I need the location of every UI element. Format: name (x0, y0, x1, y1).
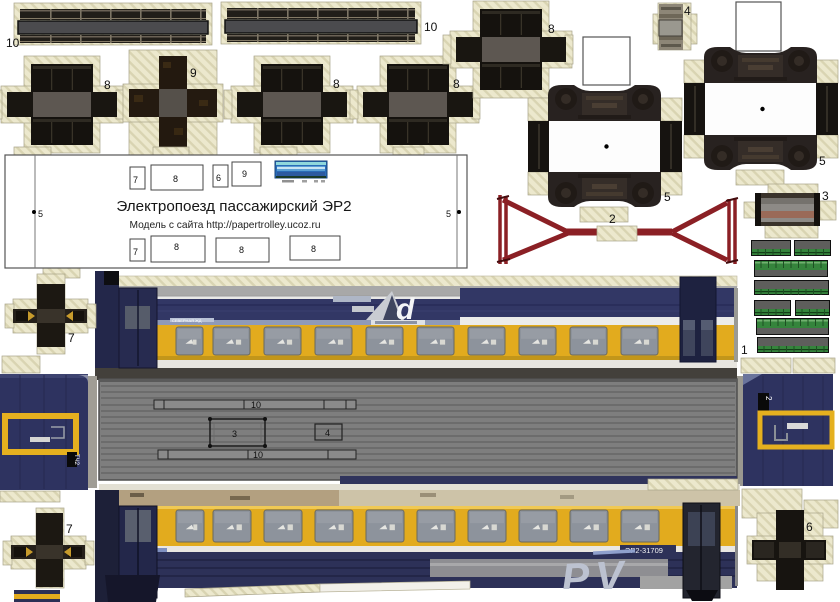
svg-text:ТЧ2: ТЧ2 (73, 454, 79, 466)
svg-text:7: 7 (66, 522, 73, 536)
svg-text:Электропоезд пассажирский ЭР2: Электропоезд пассажирский ЭР2 (116, 198, 351, 215)
svg-text:5: 5 (819, 154, 826, 168)
svg-text:8: 8 (548, 22, 555, 36)
svg-text:8: 8 (311, 244, 316, 254)
svg-text:4: 4 (684, 4, 691, 18)
svg-text:7: 7 (133, 175, 138, 185)
svg-text:10: 10 (6, 36, 20, 50)
svg-text:5: 5 (446, 209, 451, 219)
svg-text:9: 9 (190, 66, 197, 80)
svg-text:7: 7 (133, 247, 138, 257)
svg-text:10: 10 (424, 20, 438, 34)
svg-text:Модель с сайта http://papertr: Модель с сайта http://papertrolley.ucoz.… (129, 220, 320, 231)
svg-text:8: 8 (239, 245, 244, 255)
svg-text:2: 2 (609, 212, 616, 226)
svg-text:3: 3 (822, 189, 829, 203)
svg-text:1: 1 (741, 343, 748, 357)
svg-text:5: 5 (38, 209, 43, 219)
svg-text:6: 6 (806, 520, 813, 534)
svg-text:9: 9 (242, 169, 247, 179)
svg-text:3: 3 (232, 429, 237, 439)
svg-text:8: 8 (104, 78, 111, 92)
svg-text:8: 8 (453, 77, 460, 91)
svg-text:10: 10 (253, 450, 263, 460)
svg-text:8: 8 (333, 77, 340, 91)
svg-text:8: 8 (174, 242, 179, 252)
svg-text:2: 2 (764, 396, 773, 401)
svg-text:7: 7 (68, 331, 75, 345)
svg-text:5: 5 (664, 190, 671, 204)
svg-text:10: 10 (251, 400, 261, 410)
svg-text:6: 6 (216, 173, 221, 183)
svg-text:СЕВЕРНАЯ ЖД: СЕВЕРНАЯ ЖД (172, 318, 202, 323)
svg-text:4: 4 (325, 428, 330, 438)
svg-text:8: 8 (173, 174, 178, 184)
